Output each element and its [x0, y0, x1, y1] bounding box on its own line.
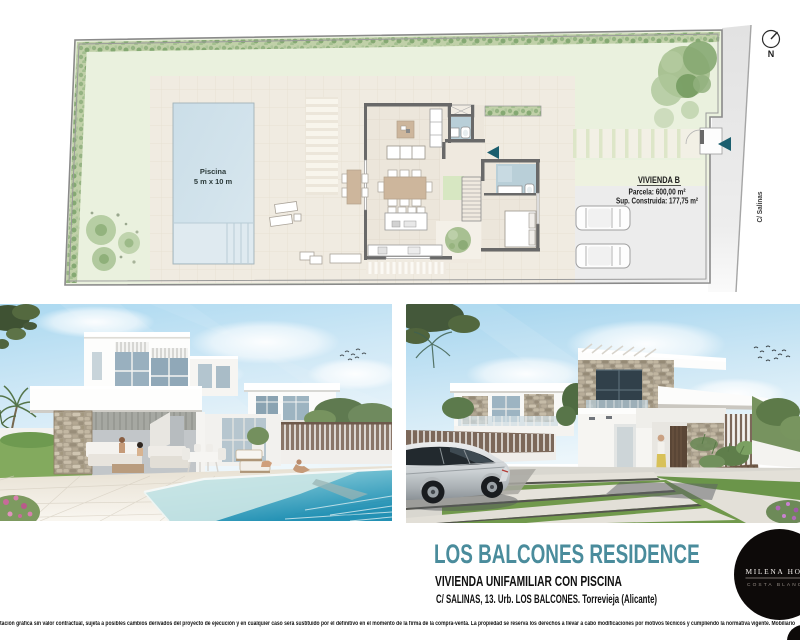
svg-text:COSTA BLANCA: COSTA BLANCA	[747, 582, 800, 588]
svg-text:Sup. Construida: 177,75 m²: Sup. Construida: 177,75 m²	[616, 196, 698, 206]
svg-text:Piscina: Piscina	[200, 167, 227, 176]
svg-text:N: N	[768, 49, 775, 59]
svg-text:C/ Salinas: C/ Salinas	[755, 192, 764, 223]
svg-text:5 m x 10 m: 5 m x 10 m	[194, 177, 233, 186]
svg-text:VIVIENDA B: VIVIENDA B	[638, 175, 680, 186]
svg-text:MILENA HOMES: MILENA HOMES	[746, 567, 800, 576]
